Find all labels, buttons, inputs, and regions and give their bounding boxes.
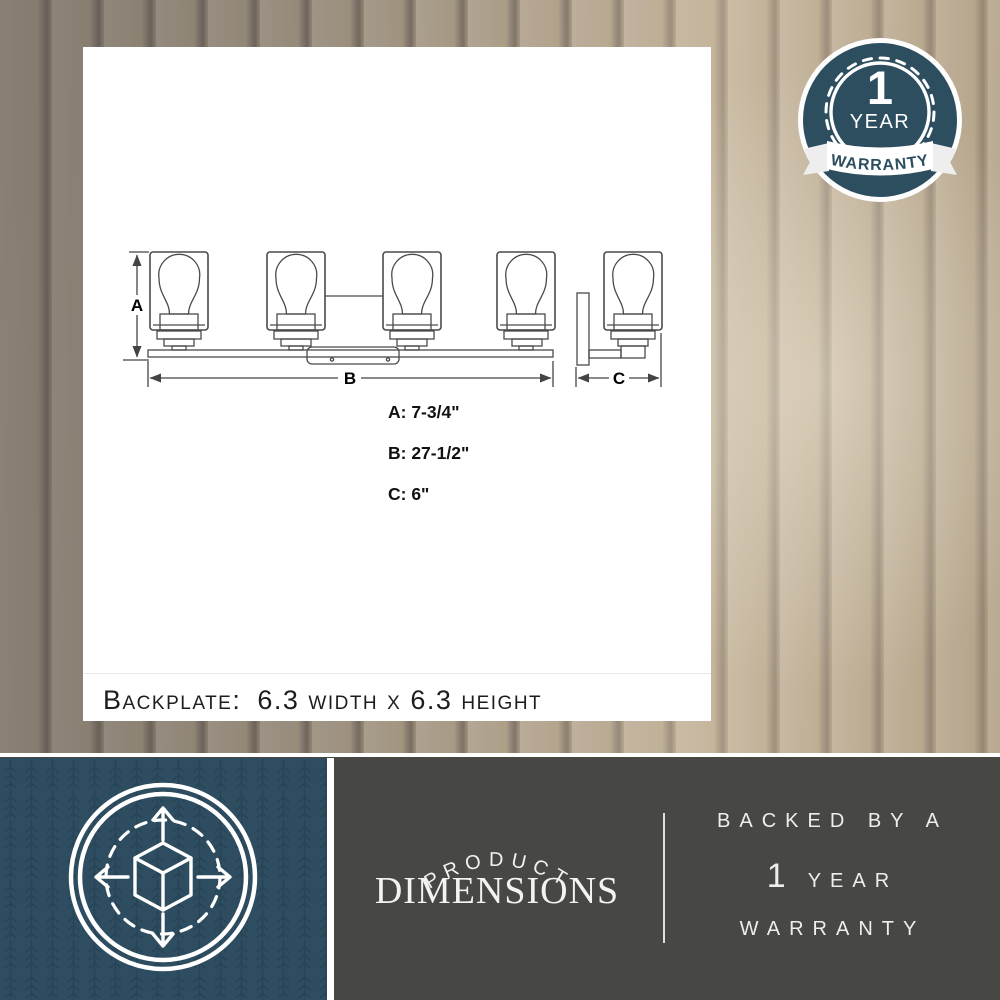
- badge-unit: YEAR: [850, 111, 910, 133]
- bulb-icon: [392, 254, 433, 314]
- dim-label-c: C: [613, 369, 625, 388]
- year-word: YEAR: [808, 870, 898, 893]
- backplate-value: 6.3 width x 6.3 height: [257, 685, 542, 715]
- vanity-front-view: [150, 252, 555, 350]
- badge-number: 1: [867, 61, 893, 114]
- bulb-icon: [159, 254, 200, 314]
- warranty-text-block: BACKED BY A 1 YEAR WARRANTY: [665, 810, 1000, 941]
- dimensions-title: DIMENSIONS: [332, 869, 662, 913]
- screw-detail: [330, 358, 333, 361]
- year-line: 1 YEAR: [665, 857, 1000, 896]
- wall-plate: [577, 293, 589, 365]
- light-fixture: [267, 252, 325, 350]
- caption-divider: [83, 673, 711, 674]
- 3d-box-dimensions-icon: [71, 785, 255, 969]
- year-number: 1: [767, 857, 788, 896]
- bulb-icon: [613, 254, 654, 314]
- backplate-label: Backplate:: [103, 685, 241, 715]
- technical-drawing: A B C A: 7-3/4" B: 27-1/2" C: 6": [83, 47, 711, 675]
- product-dimensions-graphic: A B C A: 7-3/4" B: 27-1/2" C: 6" Backpla…: [0, 0, 1000, 1000]
- mounting-bar: [148, 350, 553, 357]
- dim-label-a: A: [131, 296, 143, 315]
- dimensions-icon-tile: [0, 758, 334, 1000]
- backplate-caption: Backplate:6.3 width x 6.3 height: [103, 685, 542, 716]
- arm: [589, 350, 621, 358]
- backed-by-line: BACKED BY A: [665, 810, 1000, 833]
- warranty-line: WARRANTY: [665, 918, 1000, 941]
- dimension-value-c: C: 6": [388, 484, 429, 504]
- dimension-value-b: B: 27-1/2": [388, 443, 469, 463]
- footer-band: PRODUCT DIMENSIONS BACKED BY A 1 YEAR WA…: [0, 753, 1000, 1000]
- light-fixture: [497, 252, 555, 350]
- dim-label-b: B: [344, 369, 356, 388]
- light-fixture: [383, 252, 441, 350]
- bulb-icon: [276, 254, 317, 314]
- drawing-panel: A B C A: 7-3/4" B: 27-1/2" C: 6" Backpla…: [83, 47, 711, 721]
- screw-detail: [386, 358, 389, 361]
- dimension-value-a: A: 7-3/4": [388, 402, 460, 422]
- socket-box: [621, 346, 645, 358]
- light-fixture: [150, 252, 208, 350]
- warranty-badge: 1 YEAR WARRANTY: [797, 37, 963, 203]
- side-view: [577, 252, 662, 365]
- bulb-icon: [506, 254, 547, 314]
